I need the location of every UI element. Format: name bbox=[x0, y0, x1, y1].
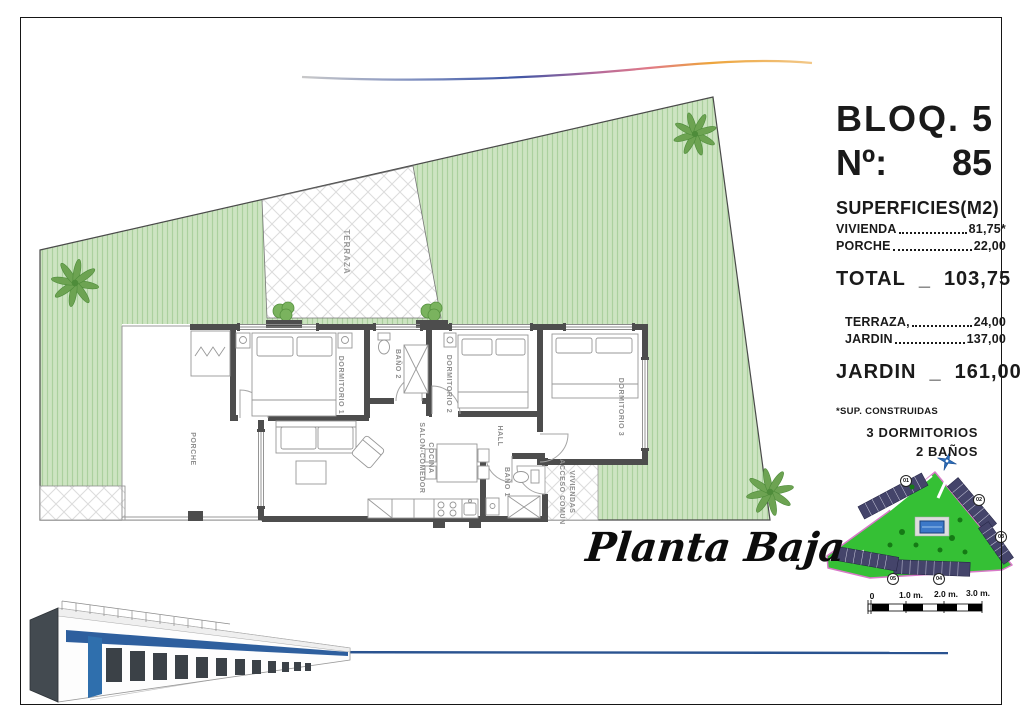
total-separator: _ bbox=[919, 268, 931, 291]
dotted-leader bbox=[912, 325, 972, 327]
total-label: TOTAL bbox=[836, 268, 906, 291]
feature-dormitorios: 3 DORMITORIOS bbox=[836, 425, 1006, 440]
jardin-separator: _ bbox=[929, 361, 941, 384]
surface-row-jardin: JARDIN 137,00 bbox=[845, 332, 1006, 346]
surface-row-terraza: TERRAZA, 24,00 bbox=[845, 315, 1006, 329]
total-row: TOTAL _ 103,75 bbox=[836, 268, 1006, 291]
outdoor-rows: TERRAZA, 24,00 JARDIN 137,00 bbox=[845, 315, 1006, 346]
surface-value: 137,00 bbox=[967, 332, 1006, 346]
jardin-total-label: JARDIN bbox=[836, 361, 916, 384]
surfaces-footnote: *SUP. CONSTRUIDAS bbox=[836, 406, 1006, 417]
unit-number-value: 85 bbox=[952, 142, 992, 184]
dotted-leader bbox=[899, 232, 967, 234]
unit-number-row: Nº: 85 bbox=[836, 142, 1006, 184]
jardin-total-row: JARDIN _ 161,00 bbox=[836, 361, 1006, 384]
dotted-leader bbox=[893, 249, 972, 251]
surface-label: JARDIN bbox=[845, 332, 893, 346]
surface-label: TERRAZA, bbox=[845, 315, 910, 329]
surfaces-title: SUPERFICIES(M2) bbox=[836, 198, 1006, 219]
surface-row-vivienda: VIVIENDA 81,75* bbox=[836, 222, 1006, 236]
unit-number-label: Nº: bbox=[836, 142, 887, 184]
floor-caption: Planta Baja bbox=[584, 524, 829, 571]
block-title: BLOQ. 5 bbox=[836, 98, 1006, 140]
info-panel: BLOQ. 5 Nº: 85 SUPERFICIES(M2) VIVIENDA … bbox=[836, 98, 1006, 459]
surface-label: PORCHE bbox=[836, 239, 891, 253]
surface-value: 22,00 bbox=[974, 239, 1006, 253]
surface-value: 24,00 bbox=[974, 315, 1006, 329]
dotted-leader bbox=[895, 342, 965, 344]
feature-banos: 2 BAÑOS bbox=[836, 444, 1006, 459]
brochure-page: TERRAZA PORCHE DORMITORIO 1 BAÑO 2 DORMI… bbox=[0, 0, 1024, 723]
surface-row-porche: PORCHE 22,00 bbox=[836, 239, 1006, 253]
jardin-total-value: 161,00 bbox=[955, 361, 1022, 384]
total-value: 103,75 bbox=[944, 268, 1011, 291]
surface-value: 81,75* bbox=[969, 222, 1006, 236]
surface-label: VIVIENDA bbox=[836, 222, 897, 236]
